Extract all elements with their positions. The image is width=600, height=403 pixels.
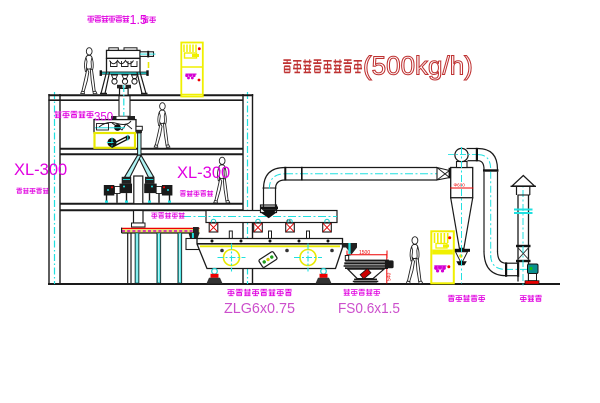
svg-text:(500kg/h): (500kg/h): [363, 51, 473, 81]
svg-text:540: 540: [387, 272, 393, 281]
svg-text:1.5: 1.5: [130, 13, 147, 27]
svg-text:Φ600: Φ600: [454, 183, 466, 188]
svg-text:350: 350: [94, 112, 113, 124]
svg-text:ZLG6x0.75: ZLG6x0.75: [224, 300, 295, 317]
svg-text:XL-300: XL-300: [14, 161, 67, 179]
svg-text:XL-300: XL-300: [177, 164, 230, 182]
svg-text:FS0.6x1.5: FS0.6x1.5: [338, 300, 400, 317]
svg-text:1500: 1500: [359, 250, 370, 256]
